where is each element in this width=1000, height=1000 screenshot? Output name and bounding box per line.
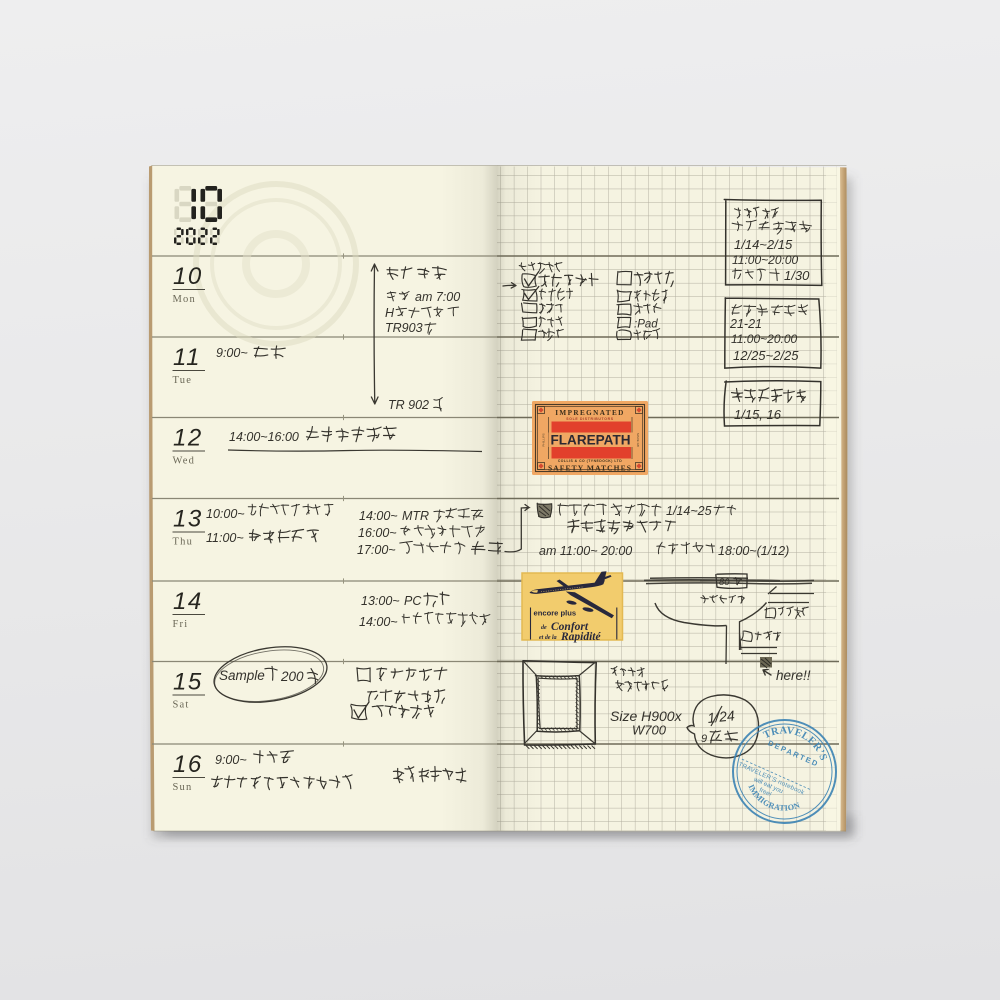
svg-text:Tue: Tue bbox=[173, 375, 193, 386]
svg-text:14:00~16:00: 14:00~16:00 bbox=[229, 430, 299, 444]
svg-text:1/30: 1/30 bbox=[784, 268, 810, 283]
svg-text:11: 11 bbox=[173, 344, 201, 371]
svg-text:here!!: here!! bbox=[776, 668, 811, 683]
svg-text:MADE GB: MADE GB bbox=[636, 433, 640, 447]
svg-text:encore plus: encore plus bbox=[534, 609, 577, 618]
svg-text:14:00~: 14:00~ bbox=[359, 509, 398, 523]
svg-text:SOLE DISTRIBUTORS: SOLE DISTRIBUTORS bbox=[566, 417, 613, 421]
svg-text:16: 16 bbox=[173, 751, 203, 778]
svg-text:Rapidité: Rapidité bbox=[560, 631, 602, 643]
svg-text:9: 9 bbox=[701, 733, 707, 745]
svg-text:80: 80 bbox=[719, 577, 730, 588]
svg-text:9:00~: 9:00~ bbox=[216, 346, 248, 360]
svg-text:Thu: Thu bbox=[173, 537, 194, 548]
svg-text:SAFETY MATCHES: SAFETY MATCHES bbox=[548, 465, 632, 472]
svg-text:11:00~: 11:00~ bbox=[206, 531, 244, 545]
svg-text:14:00~: 14:00~ bbox=[359, 615, 398, 629]
svg-text:IMPREGNATED: IMPREGNATED bbox=[555, 409, 625, 417]
svg-text:13:00~: 13:00~ bbox=[361, 594, 400, 608]
svg-text:21-21: 21-21 bbox=[729, 317, 762, 331]
svg-text:11:00~20:00: 11:00~20:00 bbox=[732, 253, 799, 267]
svg-text:W700: W700 bbox=[632, 723, 667, 738]
svg-text:TR 902: TR 902 bbox=[388, 398, 429, 412]
svg-text:H: H bbox=[385, 306, 395, 320]
svg-text:Mon: Mon bbox=[173, 294, 196, 305]
svg-text:TR903: TR903 bbox=[385, 321, 423, 335]
svg-text:Sat: Sat bbox=[173, 700, 190, 711]
svg-text:12/25~2/25: 12/25~2/25 bbox=[733, 348, 799, 363]
svg-text:COLLIS & CO (TYNEDOCK) LTD: COLLIS & CO (TYNEDOCK) LTD bbox=[558, 459, 622, 463]
svg-text:FLAREPATH: FLAREPATH bbox=[551, 432, 631, 448]
svg-text:Sample: Sample bbox=[219, 668, 265, 683]
svg-text:16:00~: 16:00~ bbox=[358, 526, 397, 540]
svg-text:12: 12 bbox=[173, 425, 203, 452]
svg-text:PC: PC bbox=[404, 594, 422, 608]
svg-text:am 7:00: am 7:00 bbox=[415, 290, 460, 304]
svg-text:Wed: Wed bbox=[173, 456, 196, 467]
svg-text:1/15, 16: 1/15, 16 bbox=[734, 407, 782, 422]
svg-text:am 11:00~ 20:00: am 11:00~ 20:00 bbox=[539, 544, 632, 558]
svg-text:13: 13 bbox=[173, 506, 203, 533]
svg-text:10: 10 bbox=[173, 263, 203, 290]
svg-text:14: 14 bbox=[173, 588, 203, 615]
svg-text:10:00~: 10:00~ bbox=[206, 507, 245, 521]
svg-text:1/14~25: 1/14~25 bbox=[666, 504, 712, 518]
svg-text:1/14~2/15: 1/14~2/15 bbox=[734, 237, 793, 252]
svg-text:200: 200 bbox=[280, 669, 304, 684]
svg-text:15: 15 bbox=[173, 669, 203, 696]
svg-text:MTR: MTR bbox=[402, 509, 429, 523]
svg-text:18:00~(1/12): 18:00~(1/12) bbox=[718, 544, 789, 558]
svg-text:17:00~: 17:00~ bbox=[357, 543, 396, 557]
svg-text:Fri: Fri bbox=[173, 619, 189, 630]
svg-text:de: de bbox=[541, 625, 547, 631]
svg-text::Pad: :Pad bbox=[634, 319, 658, 331]
svg-text:1/24: 1/24 bbox=[707, 707, 736, 726]
svg-text:Sun: Sun bbox=[173, 782, 193, 793]
svg-text:9:00~: 9:00~ bbox=[215, 753, 247, 767]
svg-text:et de la: et de la bbox=[539, 635, 557, 641]
svg-text:11:00~20:00: 11:00~20:00 bbox=[731, 332, 798, 346]
svg-text:PHILLIPS: PHILLIPS bbox=[542, 433, 546, 446]
